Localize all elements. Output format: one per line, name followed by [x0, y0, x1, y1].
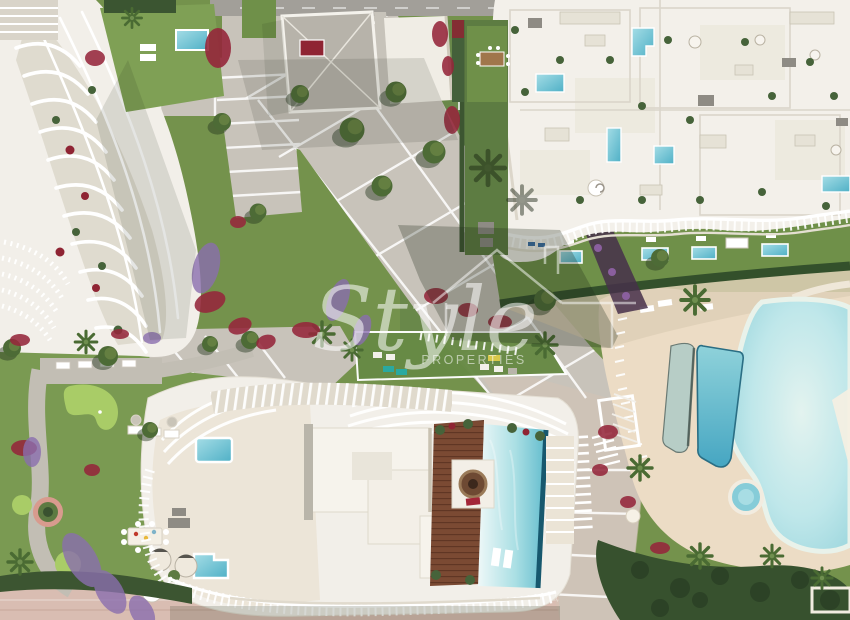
- roof-planter: [300, 40, 324, 56]
- building-south: [121, 377, 578, 617]
- site-plan-render: Style PROPERTIES: [0, 0, 850, 620]
- building-north-east: [492, 0, 850, 262]
- garden-pool: [176, 30, 208, 50]
- roof-slats: [0, 0, 58, 40]
- garden-dining-table: [480, 52, 504, 66]
- east-steps: [546, 436, 574, 544]
- watermark-subtitle: PROPERTIES: [421, 353, 526, 367]
- screenshot-root: Style PROPERTIES: [0, 0, 850, 620]
- small-pool-upper: [196, 438, 232, 462]
